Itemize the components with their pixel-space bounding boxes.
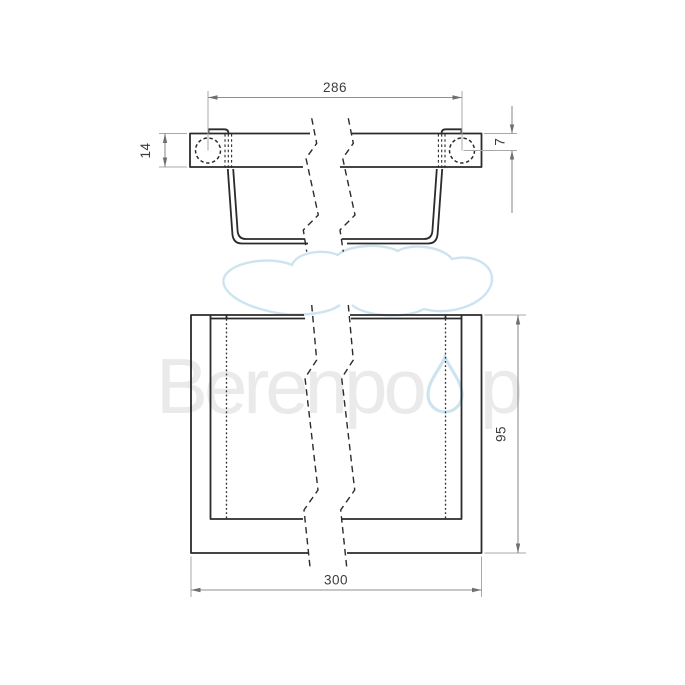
dimension-overall-width: 300: [191, 557, 482, 598]
side-view-break-line-right: [340, 118, 355, 251]
watermark-wordmark-part1: Berenpo: [156, 342, 425, 430]
rail-wire-left-outer: [228, 169, 308, 244]
dimension-bar-height: 14: [138, 134, 187, 168]
dimension-hole-spacing: 286: [208, 80, 462, 151]
dimension-label-7: 7: [493, 138, 508, 146]
rail-wire-left-inner: [233, 169, 305, 239]
extension-lines-14: [159, 134, 187, 168]
arrowhead: [516, 315, 520, 325]
arrowhead: [163, 158, 167, 168]
arrowhead: [208, 95, 218, 99]
side-elevation-view: 286 14 7: [138, 80, 517, 252]
dimension-label-95: 95: [494, 426, 509, 442]
rail-wire-right-inner: [342, 169, 437, 239]
dimension-hole-offset: 7: [464, 106, 518, 213]
arrowhead: [510, 151, 514, 160]
dimension-label-14: 14: [138, 142, 153, 158]
cloud-icon: [223, 246, 492, 315]
extension-lines-286: [208, 91, 462, 151]
arrowhead: [191, 588, 201, 592]
arrowhead: [510, 125, 514, 134]
arrowhead: [472, 588, 482, 592]
towel-rack-dimension-drawing: Berenpo p 286: [0, 0, 685, 685]
side-view-break-line-left: [303, 118, 318, 251]
left-hook-hidden-lines: [225, 134, 232, 169]
arrowhead: [453, 95, 463, 99]
wall-bar-outline: [190, 134, 482, 168]
arrowhead: [163, 134, 167, 144]
dimension-label-286: 286: [323, 80, 347, 95]
arrowhead: [516, 544, 520, 554]
rail-wire-right-outer: [347, 169, 442, 244]
right-hook-hidden-lines: [438, 134, 445, 169]
watermark-wordmark-part2: p: [480, 342, 521, 430]
technical-drawing-canvas: Berenpo p 286: [0, 0, 685, 685]
dimension-label-300: 300: [324, 573, 348, 588]
